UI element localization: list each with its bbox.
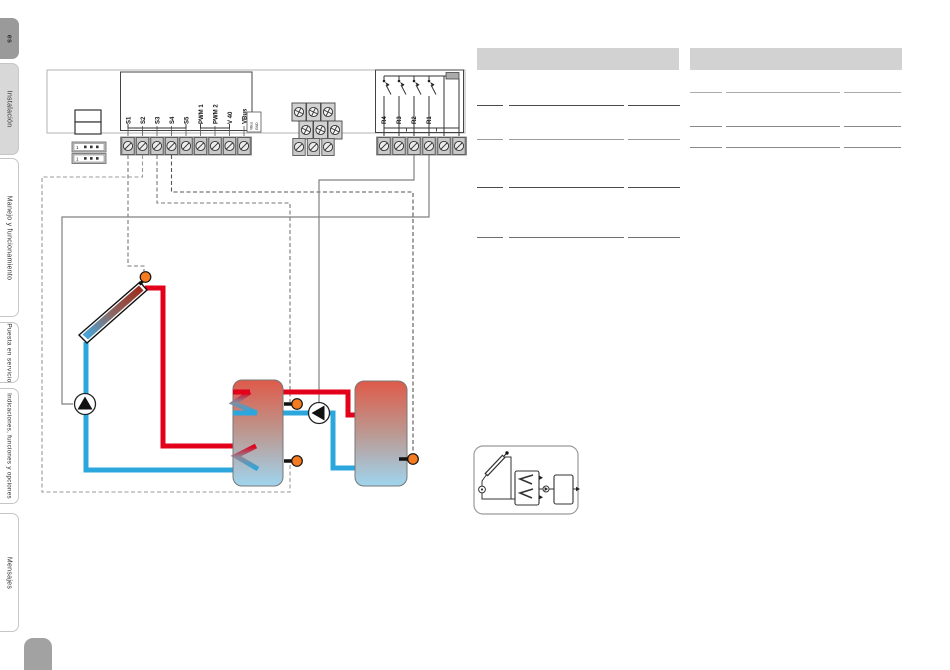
fuse: [446, 73, 459, 80]
terminal-label-v40: V 40: [228, 111, 234, 124]
mini-tank-2: [554, 475, 573, 504]
relay-label-r3: R3: [397, 116, 403, 124]
relay-label-r2: R2: [412, 116, 418, 124]
store1-base-sensor-dot: [292, 456, 303, 467]
relay-label-r1: R1: [427, 116, 433, 124]
vbus-tag-line1: VBus: [250, 122, 254, 130]
connector-pin-label: 1: [76, 145, 79, 150]
sensor-terminal-labels: S1 S2 S3 S4 S5 PWM 1 PWM 2 V 40 VBus: [121, 72, 253, 136]
wire-s1-collector-sensor: [128, 155, 144, 271]
earth-terminal-block: [292, 103, 342, 156]
terminal-label-s3: S3: [156, 116, 162, 124]
pipe-solar-return: [86, 342, 256, 470]
mini-collector-sensor: [505, 451, 508, 454]
system-thumbnail: [474, 446, 580, 514]
store1-top-sensor-dot: [292, 399, 303, 410]
terminal-label-s2: S2: [141, 116, 147, 124]
relay-block: R4 R3 R2 R1: [376, 70, 464, 136]
terminal-label-s4: S4: [170, 116, 176, 124]
terminal-label-pwm1: PWM 1: [199, 104, 205, 124]
relay-label-r4: R4: [382, 116, 388, 124]
fuse-holder-box: [75, 110, 101, 134]
sensor-terminal-strip: [121, 137, 252, 155]
terminal-label-s5: S5: [185, 116, 191, 124]
storage-tank-2: [355, 381, 407, 486]
transfer-pump: [309, 403, 330, 424]
relay-terminal-strip: [377, 137, 467, 155]
collector-sensor-dot: [140, 272, 151, 283]
terminal-label-s1: S1: [127, 116, 133, 124]
solar-pump: [75, 394, 96, 415]
store2-sensor-dot: [408, 454, 419, 465]
terminal-label-pwm2: PWM 2: [214, 104, 220, 124]
pipes: [86, 288, 364, 470]
bus-connector: 1 1: [72, 142, 106, 164]
vbus-gnd-tag: VBus GND: [247, 112, 261, 132]
connector-pin-label: 1: [76, 157, 79, 162]
vbus-tag-line2: GND: [255, 122, 259, 130]
solar-collector: [79, 279, 147, 344]
wiring-diagram: 1 1 S1 S2 S3 S: [0, 0, 950, 670]
manual-page: es Instalación Manejo y funcionamiento P…: [0, 0, 950, 670]
